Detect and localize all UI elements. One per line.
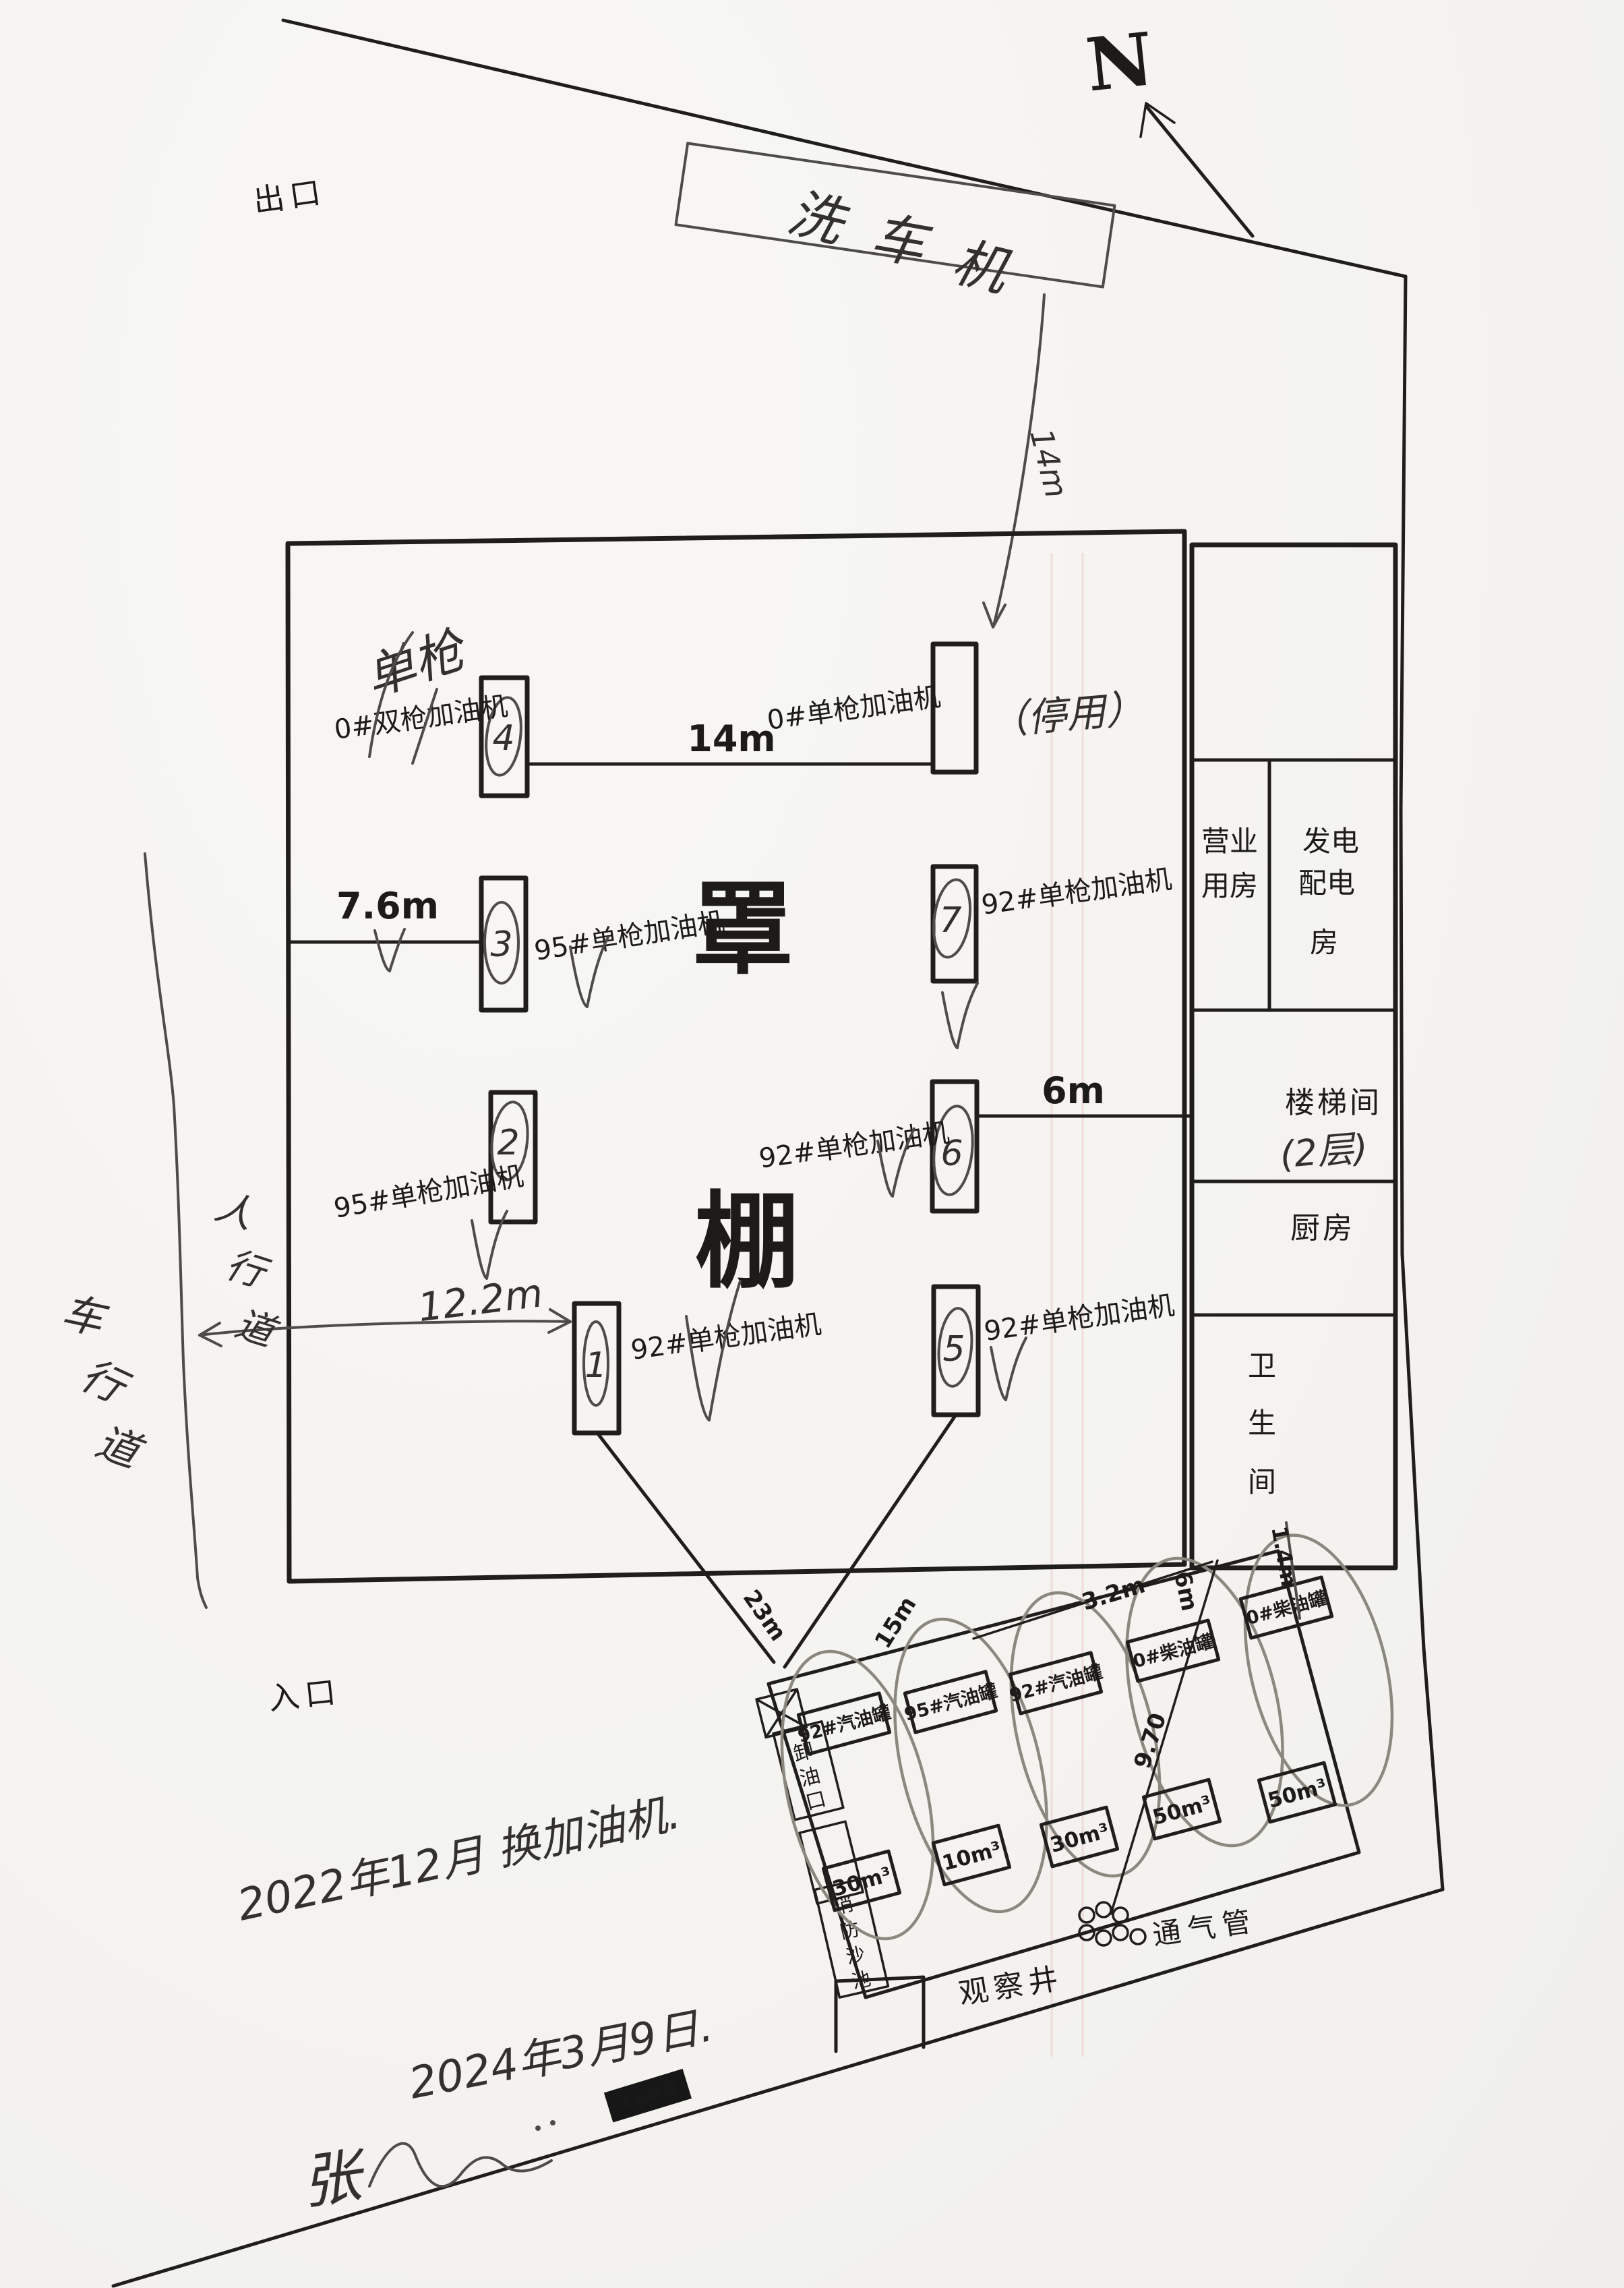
power-room-label-3: 房 — [1310, 926, 1338, 959]
dispenser-label: 92#单枪加油机 — [980, 864, 1174, 921]
signature-dot — [550, 2120, 555, 2125]
dimension-row3-right: 6m — [978, 1069, 1192, 1116]
north-indicator: N — [1083, 17, 1253, 236]
dispenser-number: 7 — [939, 900, 961, 941]
signature-char: 张 — [297, 2140, 372, 2218]
dispenser-5: 5 92#单枪加油机 — [934, 1287, 1176, 1415]
handwritten-checkmark — [942, 983, 978, 1048]
stairwell-note: (2层) — [1278, 1126, 1369, 1176]
pipe-line-right — [785, 1415, 956, 1667]
dimension-label: 14m — [687, 717, 775, 760]
handwritten-notes: 2022年12月 换加油机. 张 2024年3月9日. — [233, 1788, 717, 2218]
scanned-site-plan: N 出口 入口 洗 车 机 14m 罩 棚 营业 用房 发电 配电 房 楼梯间 … — [0, 0, 1624, 2288]
power-room-label-2: 配电 — [1298, 867, 1355, 900]
north-label: N — [1083, 17, 1157, 109]
arrow-head-icon — [984, 603, 1005, 627]
tick-mark — [375, 929, 404, 971]
dimension-row2-left: 7.6m — [289, 885, 481, 971]
dispenser-label: 0#单枪加油机 — [765, 681, 942, 736]
tank-4-name: 0#柴油罐 — [1127, 1620, 1218, 1681]
road-char: 行 — [73, 1350, 137, 1415]
tank-name-label: 92#汽油罐 — [795, 1701, 893, 1747]
tank-name-label: 95#汽油罐 — [902, 1680, 1000, 1725]
road-char: 道 — [90, 1417, 151, 1479]
business-room-label-1: 营业 — [1201, 825, 1258, 858]
dispenser-number: 5 — [942, 1329, 965, 1370]
tank-1-name: 92#汽油罐 — [793, 1692, 895, 1756]
road-char: 车 — [57, 1287, 113, 1345]
tank-outline — [755, 1636, 959, 1954]
observation-well-label: 观察井 — [957, 1961, 1066, 2012]
vent-pipe-icon — [1096, 1931, 1111, 1945]
north-arrow — [1146, 106, 1253, 236]
sidewalk-char: 人 — [210, 1184, 259, 1237]
tank-gap2-label: 6m — [1168, 1569, 1203, 1614]
dispenser-1: 1 92#单枪加油机 — [574, 1281, 823, 1433]
tank-gap-label: 3.2m — [1079, 1571, 1148, 1616]
dispenser-label: 92#单枪加油机 — [982, 1290, 1176, 1347]
canopy-char-peng: 棚 — [695, 1181, 800, 1303]
signature: 张 — [297, 2120, 555, 2218]
extinguisher-box: 灭火器箱 — [604, 2069, 692, 2123]
power-room-label-1: 发电 — [1302, 825, 1359, 858]
dispenser-number: 4 — [492, 718, 514, 759]
dispenser-label: 92#单枪加油机 — [757, 1117, 951, 1175]
vent-pipe-icon — [1113, 1925, 1128, 1940]
pipe-length-right: 15m — [870, 1591, 922, 1653]
dispenser-number: 2 — [497, 1123, 519, 1163]
tank-area: 卸 油 口 消 防 沙 池 92#汽油罐 95#汽油罐 — [604, 1520, 1418, 2123]
boundary-north — [283, 20, 1406, 276]
stairwell-label: 楼梯间 — [1285, 1086, 1382, 1120]
entrance-label: 入口 — [266, 1673, 342, 1717]
car-wash: 洗 车 机 14m — [676, 143, 1115, 627]
pipe-length-left: 23m — [738, 1585, 791, 1646]
washroom-char-1: 卫 — [1248, 1349, 1276, 1382]
dispenser-3: 3 95#单枪加油机 — [481, 878, 726, 1010]
station-building: 营业 用房 发电 配电 房 楼梯间 (2层) 厨房 卫 生 间 — [1192, 545, 1395, 1568]
piping-lines: 23m 15m — [597, 1415, 956, 1667]
dimension-label: 7.6m — [336, 885, 439, 927]
vent-pipe-icon — [1096, 1902, 1111, 1917]
dispenser-note: （停用） — [986, 685, 1146, 744]
road-edge-line — [145, 854, 206, 1608]
car-wash-char-1: 洗 — [782, 181, 855, 256]
washroom-char-2: 生 — [1248, 1407, 1276, 1440]
dimension-row1: 14m — [527, 717, 933, 764]
kitchen-label: 厨房 — [1290, 1211, 1355, 1245]
dimension-label: 6m — [1042, 1069, 1105, 1112]
boundary-south — [113, 1889, 1443, 2286]
vent-pipe-label: 通气管 — [1151, 1904, 1259, 1952]
vent-pipe-icon — [1113, 1908, 1128, 1923]
dispenser-note: 单枪 — [358, 620, 475, 707]
building-outline — [1192, 545, 1395, 1568]
replacement-note: 2022年12月 换加油机. — [233, 1788, 685, 1931]
signature-dot — [535, 2125, 541, 2131]
west-roads: 人 行 道 车 行 道 — [57, 854, 284, 1608]
dispenser-2: 2 95#单枪加油机 — [332, 1092, 535, 1279]
tank-name-label: 92#汽油罐 — [1007, 1661, 1105, 1706]
washroom-char-3: 间 — [1248, 1465, 1276, 1498]
dispenser-number: 1 — [584, 1345, 607, 1386]
pipe-line-left — [597, 1433, 774, 1662]
vent-pipe-icon — [1079, 1908, 1094, 1923]
fire-sand-pit-char: 沙 — [844, 1943, 868, 1968]
handwritten-checkmark — [991, 1338, 1026, 1400]
tank-2-name: 95#汽油罐 — [899, 1670, 1002, 1734]
tank-3-name: 92#汽油罐 — [1004, 1651, 1107, 1715]
dispenser-number: 3 — [490, 925, 512, 965]
sidewalk-char: 行 — [220, 1242, 274, 1297]
exit-label: 出口 — [251, 173, 328, 220]
dispenser-4: 4 0#双枪加油机 单枪 — [332, 620, 527, 796]
vent-pipe-icon — [1131, 1929, 1145, 1944]
boundary-east — [1401, 276, 1443, 1889]
car-wash-distance-label: 14m — [1023, 425, 1075, 501]
car-wash-char-3: 机 — [946, 230, 1015, 304]
dispenser-label: 95#单枪加油机 — [332, 1161, 526, 1225]
business-room-label-2: 用房 — [1201, 869, 1258, 902]
dispenser-idle: 0#单枪加油机 （停用） — [765, 644, 1146, 772]
car-wash-char-2: 车 — [866, 205, 936, 277]
